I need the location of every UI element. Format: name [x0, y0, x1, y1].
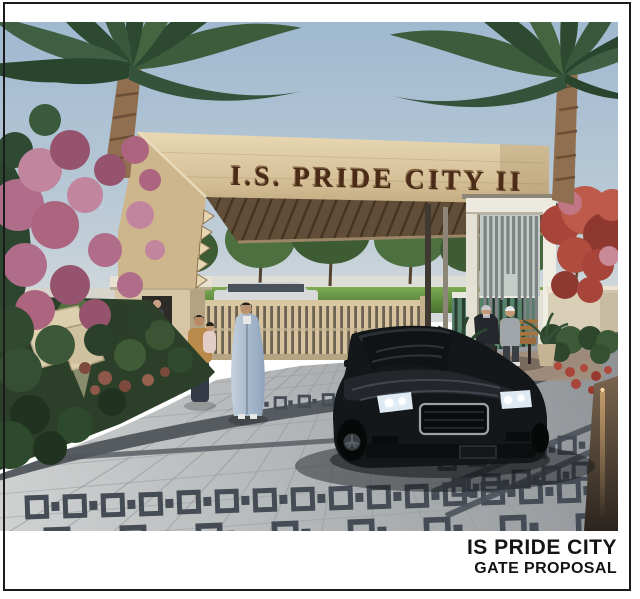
project-title: IS PRIDE CITY: [467, 536, 617, 560]
caption-subtitle: GATE PROPOSAL: [467, 560, 617, 578]
page-border: [3, 2, 631, 591]
footer-caption: IS PRIDE CITY GATE PROPOSAL: [467, 536, 617, 577]
